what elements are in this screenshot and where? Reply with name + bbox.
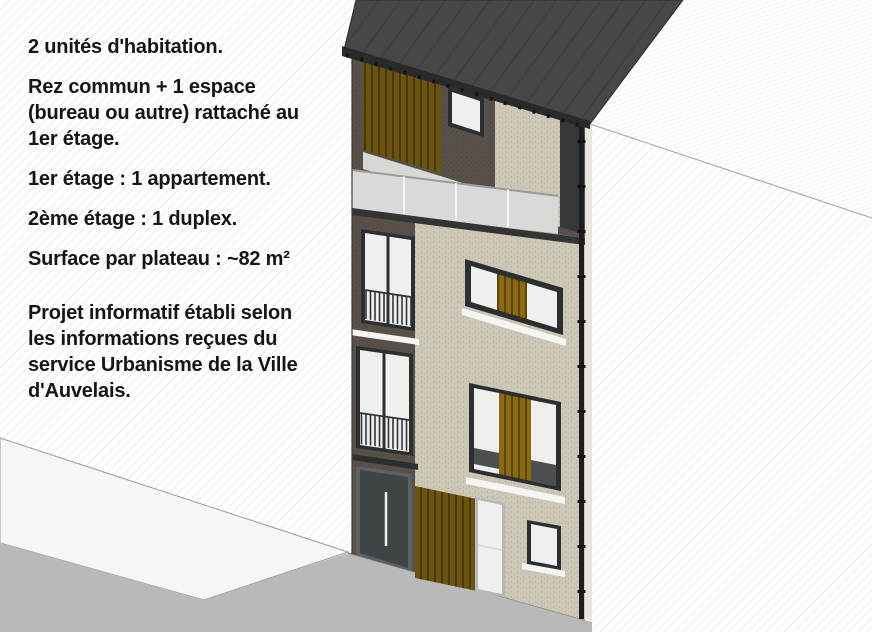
note-line: Projet informatif établi selon (28, 300, 358, 326)
note-line: d'Auvelais. (28, 378, 358, 404)
right-wall-edge (585, 122, 592, 621)
note-line: Rez commun + 1 espace (28, 74, 358, 100)
note-line: 2 unités d'habitation. (28, 34, 358, 60)
note-line: 1er étage : 1 appartement. (28, 166, 358, 192)
note-line: Surface par plateau : ~82 m² (28, 246, 358, 272)
door-panel (360, 470, 408, 568)
small-window (522, 520, 565, 577)
note-line: service Urbanisme de la Ville (28, 352, 358, 378)
glazed-door (475, 497, 505, 597)
note-line: 2ème étage : 1 duplex. (28, 206, 358, 232)
corner-glazing-strip (560, 114, 580, 233)
note-line: 1er étage. (28, 126, 358, 152)
project-notes: 2 unités d'habitation. Rez commun + 1 es… (28, 34, 358, 404)
note-line: (bureau ou autre) rattaché au (28, 100, 358, 126)
window-glass (531, 524, 557, 566)
note-line: les informations reçues du (28, 326, 358, 352)
entrance-door (356, 466, 412, 571)
window-wood-slats (499, 393, 531, 481)
ground-wood-slat-screen (415, 486, 477, 591)
